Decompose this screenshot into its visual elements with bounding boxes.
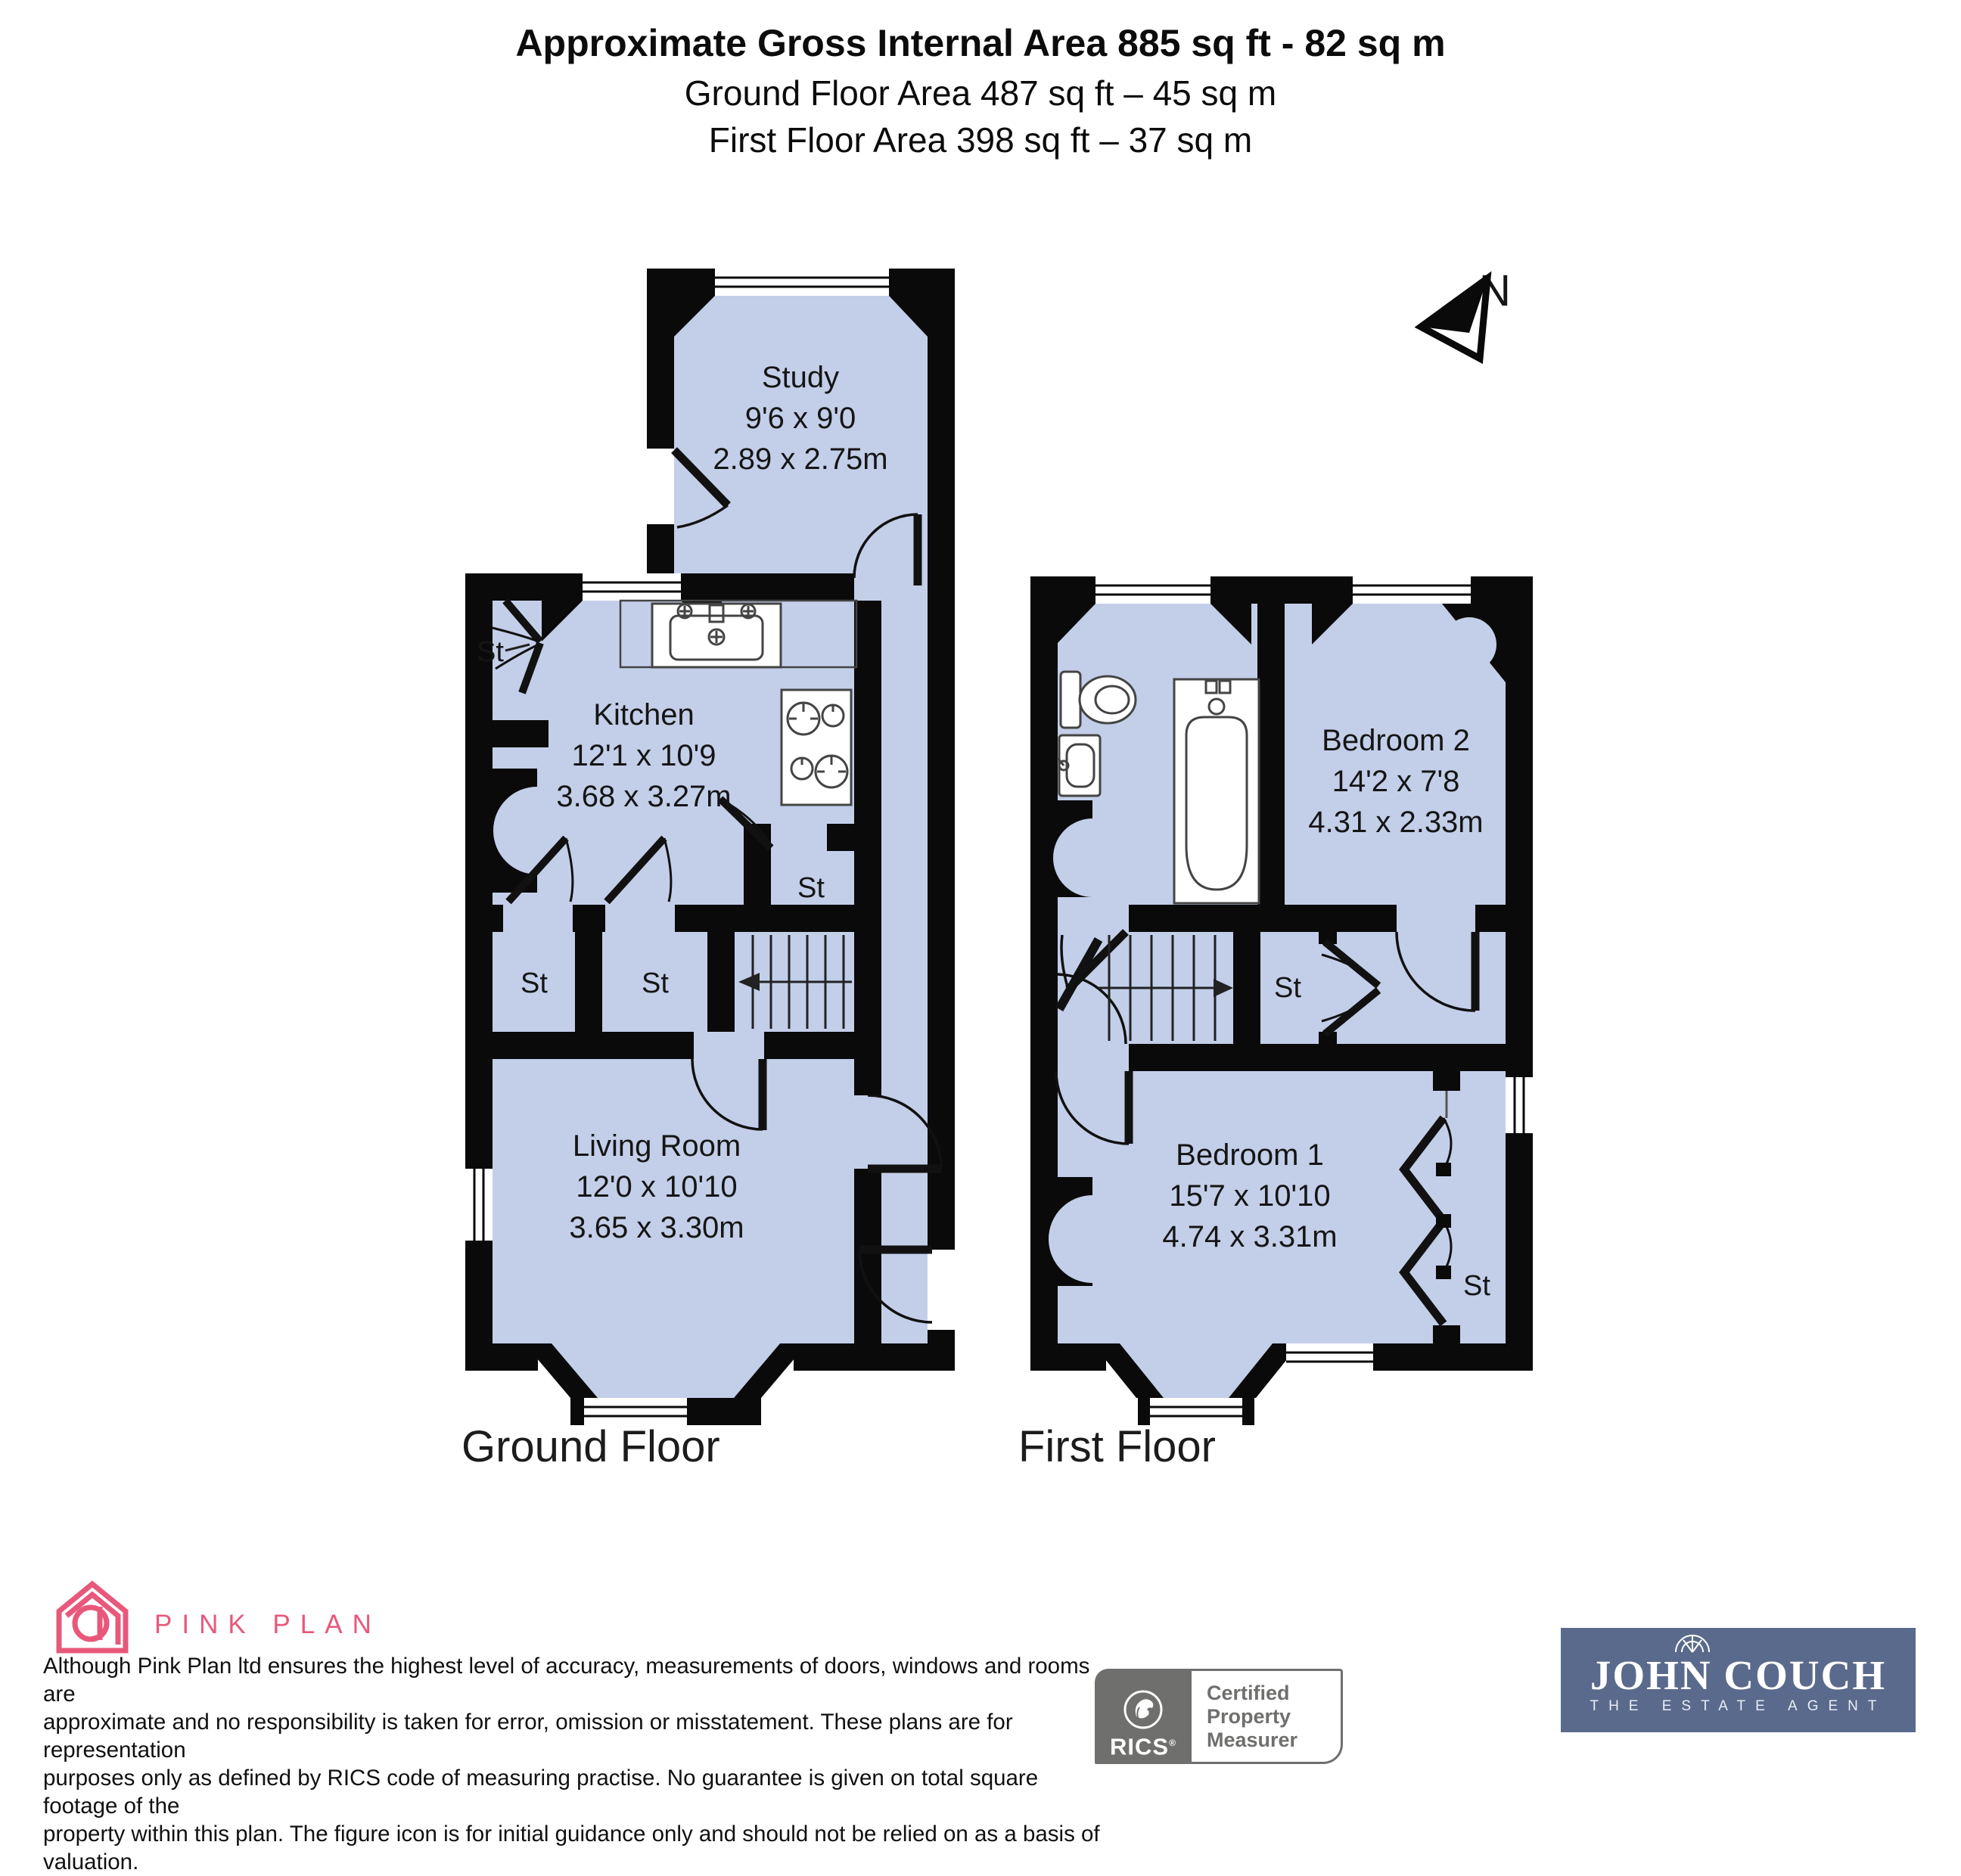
ground-floor-plan: Study 9'6 x 9'0 2.89 x 2.75m Kitchen 12'… [462,269,955,1471]
bedroom1-imperial: 15'7 x 10'10 [1169,1179,1330,1213]
kitchen-name: Kitchen [593,698,694,731]
study-metric: 2.89 x 2.75m [713,443,887,476]
disclaimer-line-1: Although Pink Plan ltd ensures the highe… [43,1652,1117,1708]
study-imperial: 9'6 x 9'0 [745,402,856,435]
bathroom-toilet [1061,672,1136,728]
kitchen-metric: 3.68 x 3.27m [556,780,731,813]
rics-line-2: Property [1207,1705,1341,1728]
bedroom1-name: Bedroom 1 [1176,1138,1324,1172]
rics-line-3: Measurer [1207,1728,1341,1752]
ff-storage-landing-label: St [1274,972,1301,1004]
bedroom2-corner-bump [1442,617,1496,672]
gf-storage-2-label: St [642,968,669,999]
bedroom1-metric: 4.74 x 3.31m [1162,1220,1337,1253]
fanlight-icon [1673,1632,1712,1654]
agent-tagline: THE ESTATE AGENT [1590,1698,1886,1715]
bedroom2-metric: 4.31 x 2.33m [1308,806,1483,839]
agent-name: JOHN COUCH [1590,1656,1886,1695]
floorplan-canvas: Study 9'6 x 9'0 2.89 x 2.75m Kitchen 12'… [0,0,1961,1778]
bathroom-bath [1174,679,1259,903]
john-couch-logo: JOHN COUCH THE ESTATE AGENT [1561,1628,1916,1732]
rics-registered-mark: ® [1169,1738,1176,1748]
gf-storage-3-label: St [797,872,825,904]
living-room-imperial: 12'0 x 10'10 [576,1170,737,1204]
kitchen-hob [782,690,851,805]
ff-storage-bedroom1-label: St [1463,1270,1490,1302]
disclaimer-line-3: purposes only as defined by RICS code of… [43,1764,1117,1820]
gf-storage-1-label: St [521,968,548,999]
first-floor-plan: Bedroom 2 14'2 x 7'8 4.31 x 2.33m Bedroo… [1018,576,1533,1471]
living-room-metric: 3.65 x 3.30m [569,1211,744,1244]
pink-plan-brand: PINK PLAN [154,1610,381,1640]
rics-lion-icon [1121,1688,1165,1732]
disclaimer-line-4: property within this plan. The figure ic… [43,1820,1117,1876]
first-floor-label: First Floor [1018,1422,1216,1471]
rics-certified-box: Certified Property Measurer [1192,1669,1343,1764]
living-room-name: Living Room [573,1129,741,1163]
rics-line-1: Certified [1207,1682,1341,1705]
disclaimer-line-2: approximate and no responsibility is tak… [43,1708,1117,1764]
disclaimer-text: Although Pink Plan ltd ensures the highe… [43,1652,1117,1876]
gf-storage-closet-label: St [477,636,504,668]
bathroom-basin [1058,735,1100,796]
study-name: Study [762,361,839,394]
pink-plan-logo-icon [48,1576,139,1655]
rics-wordmark: RICS® [1110,1732,1176,1758]
ground-floor-label: Ground Floor [462,1422,720,1471]
rics-tile: RICS® [1095,1669,1192,1764]
bedroom2-imperial: 14'2 x 7'8 [1332,765,1460,798]
north-arrow: N [1421,266,1511,359]
kitchen-imperial: 12'1 x 10'9 [572,739,716,772]
bedroom2-name: Bedroom 2 [1322,724,1470,757]
rics-badge: RICS® Certified Property Measurer [1095,1669,1343,1764]
